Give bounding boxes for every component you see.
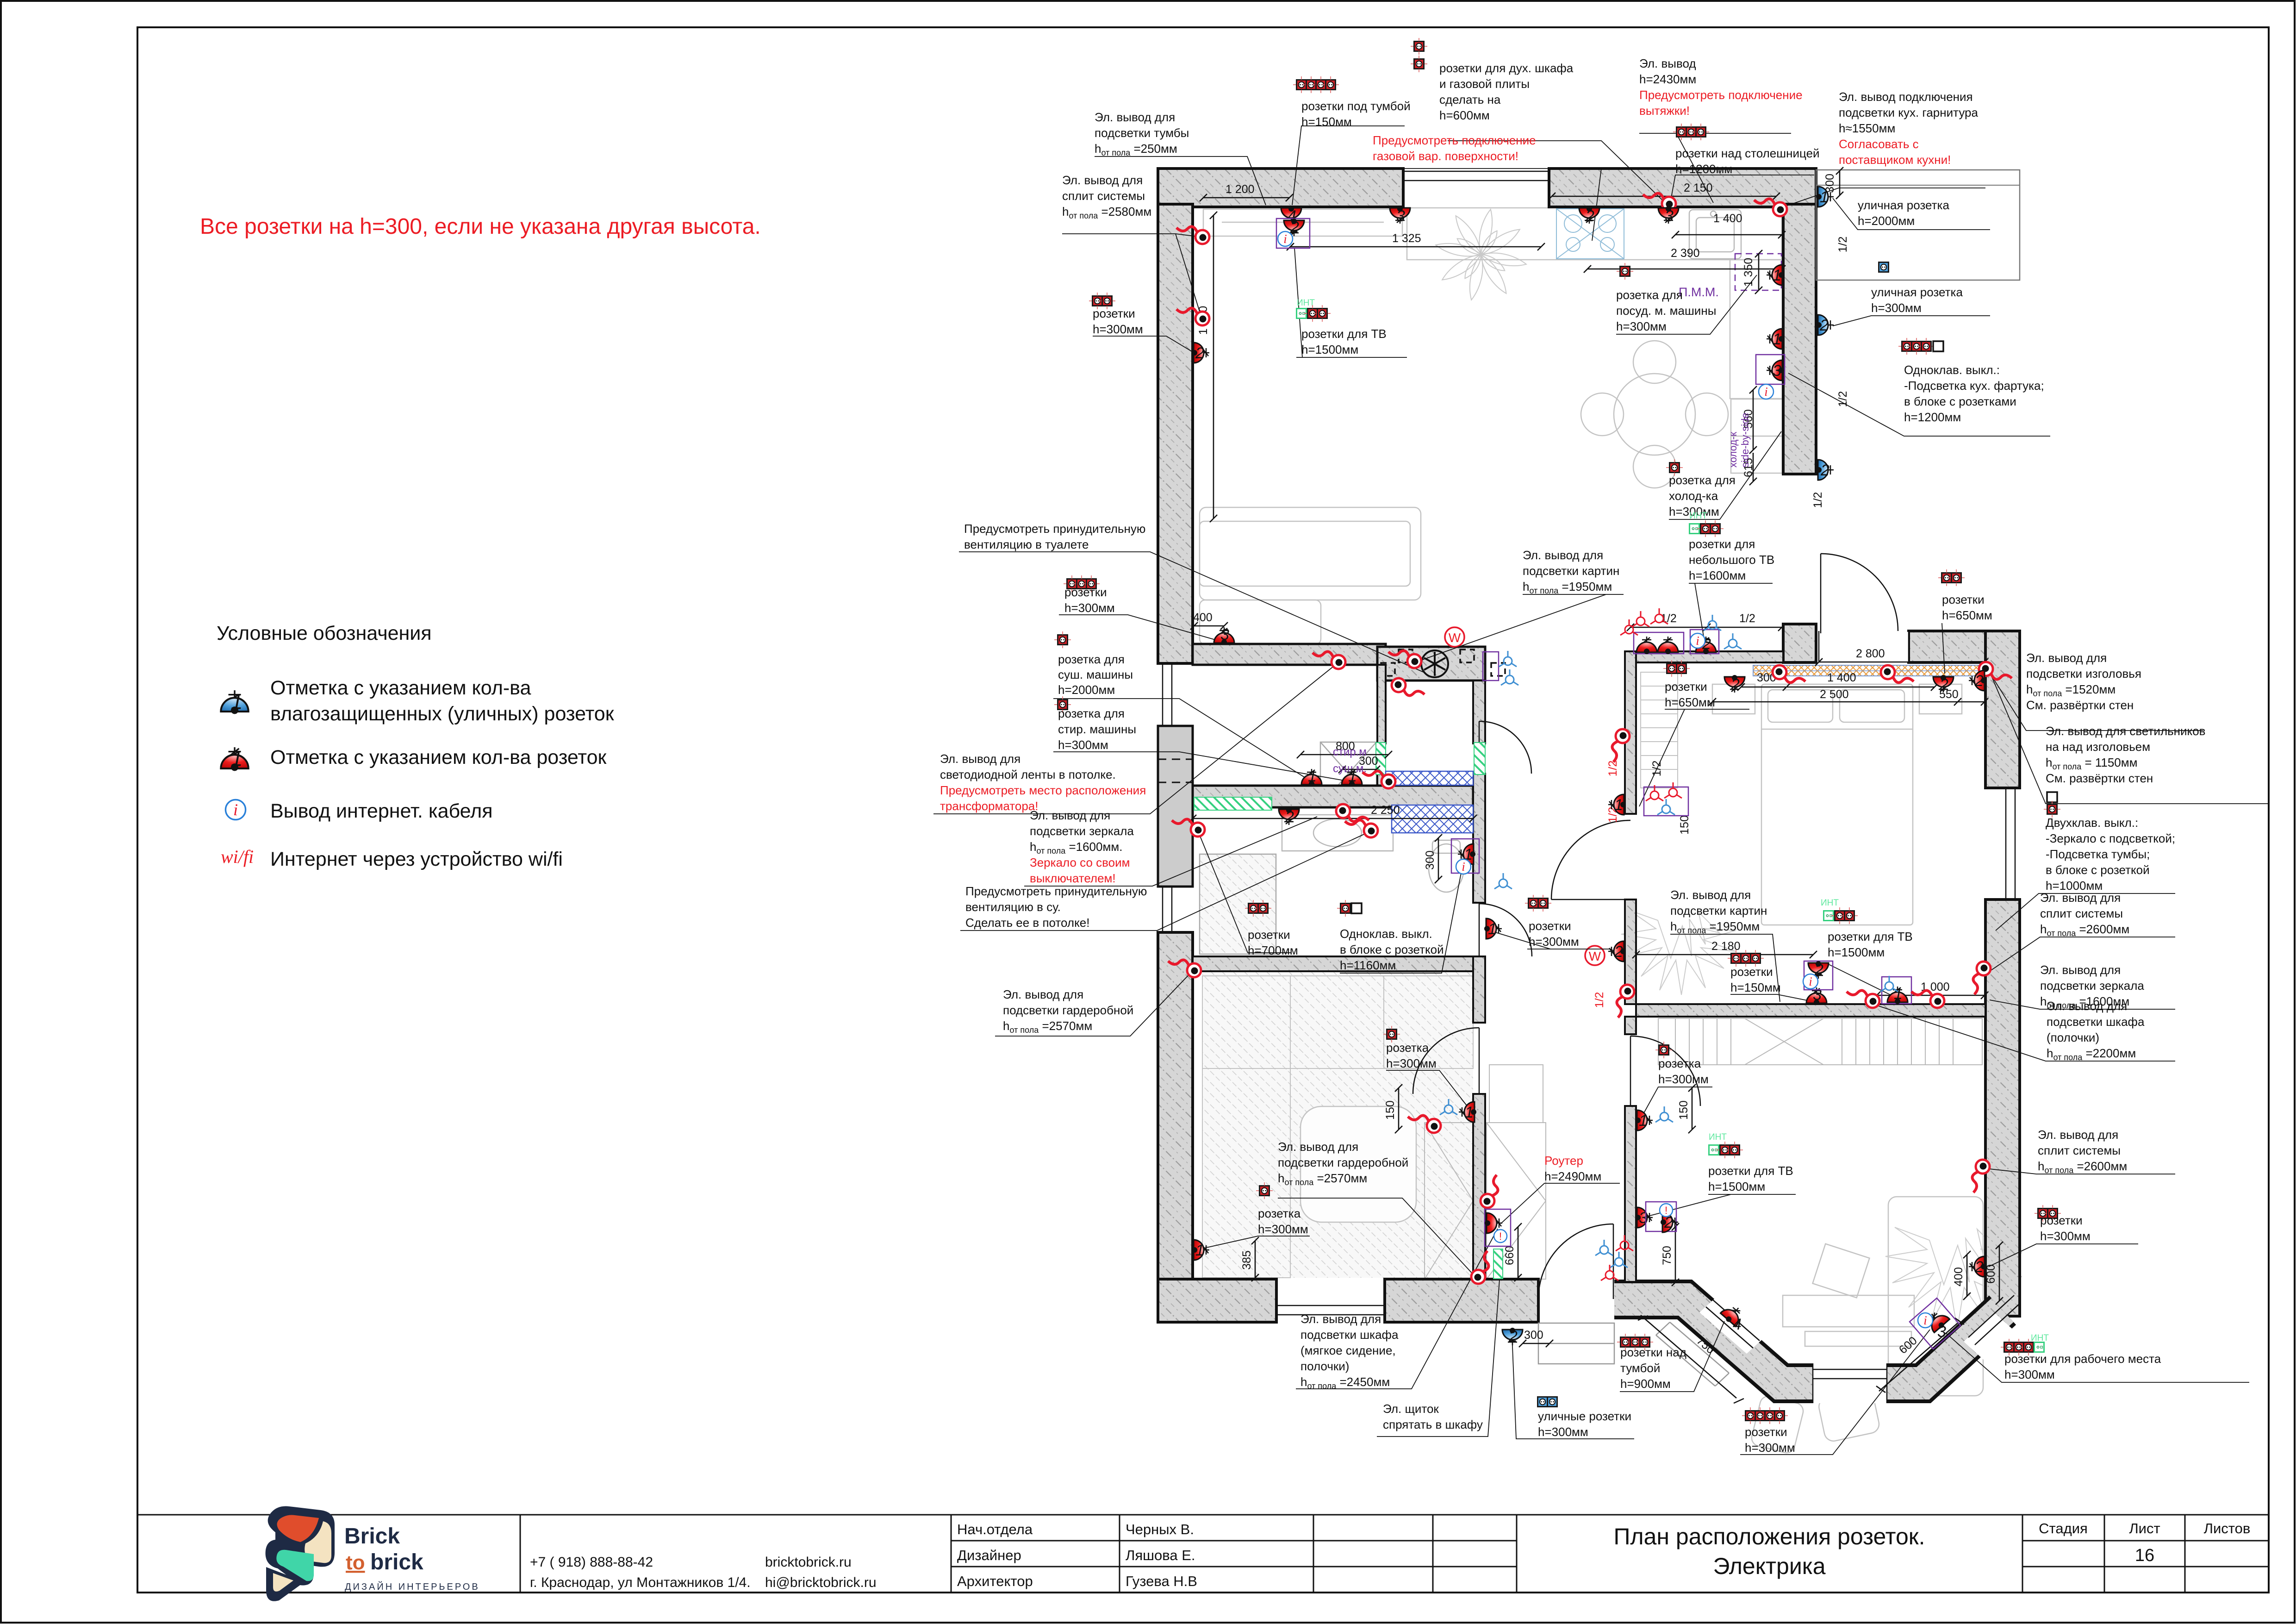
svg-text:150: 150: [1384, 1100, 1397, 1120]
svg-text:розетки для дух. шкафа: розетки для дух. шкафа: [1439, 61, 1574, 75]
svg-text:Эл. вывод: Эл. вывод: [1639, 56, 1696, 70]
svg-text:Эл. вывод для: Эл. вывод для: [1300, 1312, 1381, 1326]
svg-text:h=650мм: h=650мм: [1665, 695, 1715, 709]
svg-text:вытяжки!: вытяжки!: [1639, 104, 1690, 118]
svg-text:h=300мм: h=300мм: [2004, 1368, 2055, 1381]
svg-text:Предусмотреть принудительную: Предусмотреть принудительную: [965, 884, 1147, 898]
svg-text:750: 750: [1661, 1246, 1674, 1265]
svg-text:h=1500мм: h=1500мм: [1708, 1180, 1765, 1193]
svg-text:2 500: 2 500: [1820, 688, 1849, 701]
svg-text:1: 1: [231, 747, 243, 771]
svg-text:W: W: [1589, 949, 1601, 963]
svg-text:холод-ка: холод-ка: [1669, 489, 1718, 503]
svg-text:2: 2: [1820, 462, 1829, 479]
svg-text:bricktobrick.ru: bricktobrick.ru: [765, 1555, 852, 1570]
svg-text:и газовой плиты: и газовой плиты: [1439, 77, 1530, 91]
svg-text:розетки над: розетки над: [1620, 1345, 1686, 1359]
svg-text:Отметка с указанием кол-ва: Отметка с указанием кол-ва: [270, 677, 531, 699]
svg-text:1: 1: [1488, 920, 1497, 938]
svg-text:посуд. м. машины: посуд. м. машины: [1616, 304, 1716, 318]
svg-text:Черных В.: Черных В.: [1126, 1521, 1194, 1537]
svg-text:Вывод интернет. кабеля: Вывод интернет. кабеля: [270, 800, 493, 822]
svg-text:2: 2: [1614, 943, 1623, 961]
svg-text:h=300мм: h=300мм: [1538, 1425, 1588, 1439]
svg-text:розетки: розетки: [1665, 680, 1707, 693]
svg-text:h=2430мм: h=2430мм: [1639, 72, 1696, 86]
svg-text:660: 660: [1503, 1246, 1516, 1265]
svg-text:в блоке с розеткой: в блоке с розеткой: [1340, 943, 1444, 956]
svg-text:600: 600: [1985, 1264, 1997, 1284]
svg-text:h=300мм: h=300мм: [1616, 319, 1667, 333]
svg-text:h=300мм: h=300мм: [2040, 1229, 2091, 1243]
svg-text:розетки над столешницей: розетки над столешницей: [1675, 146, 1820, 160]
svg-text:(мягкое сидение,: (мягкое сидение,: [1300, 1343, 1396, 1357]
svg-text:ИНТ: ИНТ: [2031, 1333, 2049, 1343]
svg-text:brick: brick: [370, 1550, 423, 1574]
svg-text:Гузева Н.В: Гузева Н.В: [1126, 1573, 1197, 1589]
svg-text:400: 400: [1193, 611, 1213, 624]
svg-text:Все розетки на h=300, если не: Все розетки на h=300, если не указана др…: [200, 214, 761, 239]
svg-text:в блоке с розеткой: в блоке с розеткой: [2046, 863, 2150, 877]
svg-text:h=600мм: h=600мм: [1439, 108, 1490, 122]
svg-text:Эл. вывод для: Эл. вывод для: [2038, 1128, 2118, 1142]
svg-text:подсветки шкафа: подсветки шкафа: [2047, 1015, 2145, 1029]
svg-text:спрятать в шкафу: спрятать в шкафу: [1383, 1418, 1483, 1431]
svg-text:!: !: [1499, 1230, 1502, 1242]
svg-text:розетки для: розетки для: [1689, 537, 1755, 551]
svg-text:3: 3: [1813, 986, 1822, 1004]
svg-text:стир. машины: стир. машины: [1058, 722, 1136, 736]
svg-text:небольшого ТВ: небольшого ТВ: [1689, 553, 1774, 567]
svg-text:Отметка с указанием кол-ва роз: Отметка с указанием кол-ва розеток: [270, 746, 607, 768]
svg-text:ИНТ: ИНТ: [1709, 1132, 1727, 1142]
svg-text:h=650мм: h=650мм: [1942, 608, 1992, 622]
svg-text:См. развёртки стен: См. развёртки стен: [2026, 698, 2134, 712]
svg-text:1: 1: [1308, 768, 1317, 785]
svg-text:Brick: Brick: [344, 1524, 400, 1549]
svg-text:h=1200мм: h=1200мм: [1675, 162, 1732, 176]
svg-text:уличная розетка: уличная розетка: [1858, 198, 1949, 212]
svg-text:h=150мм: h=150мм: [1730, 981, 1781, 994]
svg-text:385: 385: [1240, 1250, 1253, 1270]
svg-text:Предусмотреть принудительную: Предусмотреть принудительную: [964, 522, 1145, 536]
svg-text:h=2000мм: h=2000мм: [1058, 683, 1115, 697]
svg-text:тумбой: тумбой: [1620, 1361, 1660, 1375]
svg-text:!: !: [1665, 1205, 1668, 1216]
svg-text:16: 16: [2135, 1546, 2154, 1565]
svg-text:подсветки шкафа: подсветки шкафа: [1300, 1328, 1399, 1342]
svg-text:подсветки картин: подсветки картин: [1670, 904, 1767, 918]
svg-text:Эл. вывод для: Эл. вывод для: [940, 752, 1020, 766]
svg-text:суш. машины: суш. машины: [1058, 668, 1133, 681]
svg-text:h≈1550мм: h≈1550мм: [1839, 121, 1895, 135]
svg-text:W: W: [1449, 631, 1461, 645]
svg-text:План расположения розеток.: План расположения розеток.: [1613, 1524, 1925, 1549]
svg-text:400: 400: [1952, 1267, 1965, 1287]
svg-text:2: 2: [1290, 219, 1299, 236]
svg-text:1: 1: [1465, 1104, 1474, 1121]
svg-text:3: 3: [1220, 626, 1229, 643]
svg-text:h=300мм: h=300мм: [1064, 601, 1115, 615]
svg-text:розетки: розетки: [1745, 1425, 1787, 1439]
svg-text:h=300мм: h=300мм: [1745, 1441, 1795, 1455]
svg-text:розетки: розетки: [2040, 1213, 2083, 1227]
svg-text:300: 300: [1424, 850, 1437, 870]
svg-text:4: 4: [1733, 1316, 1742, 1333]
svg-text:h=700мм: h=700мм: [1248, 943, 1298, 957]
svg-text:1: 1: [1773, 331, 1781, 348]
svg-text:h=300мм: h=300мм: [1529, 935, 1579, 949]
svg-text:трансформатора!: трансформатора!: [940, 799, 1038, 813]
svg-text:h=300мм: h=300мм: [1871, 301, 1922, 315]
svg-text:to: to: [346, 1551, 365, 1574]
svg-text:Эл. щиток: Эл. щиток: [1383, 1402, 1439, 1416]
svg-text:Эл. вывод для: Эл. вывод для: [2040, 891, 2121, 905]
svg-text:стир.м: стир.м: [1333, 746, 1367, 758]
svg-text:Условные обозначения: Условные обозначения: [217, 622, 432, 644]
svg-text:подсветки зеркала: подсветки зеркала: [2040, 979, 2144, 993]
svg-text:Предусмотреть подключение: Предусмотреть подключение: [1373, 133, 1536, 147]
svg-text:Эл. вывод для: Эл. вывод для: [1062, 173, 1143, 187]
svg-text:2: 2: [1285, 808, 1294, 826]
svg-text:розетки: розетки: [1093, 306, 1135, 320]
svg-text:h=1160мм: h=1160мм: [1340, 958, 1396, 972]
svg-text:Эл. вывод для: Эл. вывод для: [1003, 987, 1083, 1001]
svg-text:1: 1: [231, 690, 243, 714]
svg-text:3: 3: [1937, 1323, 1946, 1341]
svg-text:1/2: 1/2: [1811, 492, 1824, 508]
svg-text:1: 1: [1773, 267, 1781, 284]
svg-text:1: 1: [1348, 768, 1357, 785]
svg-text:вентиляцию в су.: вентиляцию в су.: [965, 900, 1061, 914]
svg-text:сплит системы: сплит системы: [2040, 906, 2123, 920]
svg-text:Эл. вывод подключения: Эл. вывод подключения: [1839, 90, 1973, 104]
svg-text:2: 2: [1585, 207, 1594, 225]
svg-text:Роутер: Роутер: [1544, 1154, 1583, 1168]
svg-text:h=300мм: h=300мм: [1386, 1056, 1437, 1070]
svg-text:Эл. вывод для: Эл. вывод для: [1670, 888, 1751, 902]
svg-text:2: 2: [1974, 672, 1984, 690]
svg-text:Лист: Лист: [2129, 1520, 2160, 1537]
svg-text:hi@bricktobrick.ru: hi@bricktobrick.ru: [765, 1575, 877, 1590]
svg-text:+7 ( 918) 888-88-42: +7 ( 918) 888-88-42: [530, 1555, 653, 1570]
svg-text:h=900мм: h=900мм: [1620, 1377, 1671, 1391]
svg-text:Ляшова Е.: Ляшова Е.: [1126, 1547, 1195, 1563]
svg-text:2 250: 2 250: [1371, 804, 1400, 817]
svg-text:3: 3: [1665, 207, 1674, 225]
svg-text:П.М.М.: П.М.М.: [1679, 285, 1719, 299]
svg-text:выключателем!: выключателем!: [1030, 871, 1116, 885]
svg-text:Зеркало со своим: Зеркало со своим: [1030, 856, 1130, 869]
svg-text:h=2490мм: h=2490мм: [1544, 1169, 1601, 1183]
svg-text:Стадия: Стадия: [2039, 1520, 2088, 1537]
svg-text:1/2: 1/2: [1836, 237, 1849, 253]
svg-text:розетки для ТВ: розетки для ТВ: [1828, 930, 1913, 943]
svg-text:розетки для ТВ: розетки для ТВ: [1301, 327, 1387, 341]
svg-text:2 390: 2 390: [1671, 247, 1700, 260]
svg-text:розетки для рабочего места: розетки для рабочего места: [2004, 1352, 2161, 1366]
svg-text:150: 150: [1678, 815, 1691, 835]
svg-text:Эл. вывод для: Эл. вывод для: [1523, 548, 1603, 562]
svg-text:в блоке с розетками: в блоке с розетками: [1904, 394, 2016, 408]
svg-text:подсветки кух. гарнитура: подсветки кух. гарнитура: [1839, 106, 1978, 119]
svg-text:Дизайнер: Дизайнер: [957, 1547, 1021, 1563]
svg-text:1 325: 1 325: [1392, 232, 1421, 245]
svg-text:1/2: 1/2: [1593, 992, 1606, 1008]
svg-text:h=300мм: h=300мм: [1093, 322, 1143, 336]
svg-text:г. Краснодар, ул Монтажников: г. Краснодар, ул Монтажников 1/4.: [530, 1575, 751, 1590]
svg-text:-Зеркало с подсветкой;: -Зеркало с подсветкой;: [2046, 831, 2175, 845]
svg-text:на над изголовьем: на над изголовьем: [2046, 740, 2150, 754]
svg-text:1/2: 1/2: [1739, 612, 1755, 625]
svg-text:2: 2: [1974, 1258, 1984, 1276]
svg-text:Эл. вывод для светильников: Эл. вывод для светильников: [2046, 724, 2205, 738]
svg-text:2: 2: [1508, 1328, 1518, 1345]
svg-text:влагозащищенных (уличных) розе: влагозащищенных (уличных) розеток: [270, 703, 615, 725]
svg-text:h=300мм: h=300мм: [1658, 1072, 1709, 1086]
svg-text:розетки: розетки: [1529, 919, 1571, 933]
svg-text:вентиляцию в туалете: вентиляцию в туалете: [964, 537, 1089, 551]
svg-text:газовой вар. поверхности!: газовой вар. поверхности!: [1373, 149, 1518, 163]
svg-text:подсветки картин: подсветки картин: [1523, 564, 1619, 578]
svg-text:подсветки гардеробной: подсветки гардеробной: [1278, 1156, 1408, 1169]
svg-text:Сделать ее в потолке!: Сделать ее в потолке!: [965, 916, 1089, 930]
svg-text:подсветки зеркала: подсветки зеркала: [1030, 824, 1134, 838]
svg-text:1 400: 1 400: [1713, 212, 1742, 225]
svg-text:Одноклав. выкл.:: Одноклав. выкл.:: [1904, 363, 2000, 377]
svg-text:розетки: розетки: [1942, 593, 1985, 606]
svg-text:150: 150: [1677, 1100, 1690, 1120]
svg-text:Предусмотреть место расположен: Предусмотреть место расположения: [940, 783, 1146, 797]
svg-text:1 350: 1 350: [1742, 258, 1755, 287]
svg-text:3: 3: [1396, 207, 1405, 225]
svg-text:1 200: 1 200: [1226, 183, 1255, 196]
svg-text:2: 2: [1195, 344, 1204, 362]
svg-text:ДИЗАЙН ИНТЕРЬЕРОВ: ДИЗАЙН ИНТЕРЬЕРОВ: [345, 1581, 480, 1592]
svg-text:-Подсветка кух. фартука;: -Подсветка кух. фартука;: [1904, 379, 2044, 393]
svg-text:розетка для: розетка для: [1669, 473, 1736, 487]
svg-text:подсветки изголовья: подсветки изголовья: [2026, 667, 2141, 681]
svg-text:уличная розетка: уличная розетка: [1871, 285, 1963, 299]
svg-text:поставщиком кухни!: поставщиком кухни!: [1839, 153, 1951, 167]
svg-text:розетка для: розетка для: [1058, 652, 1125, 666]
svg-text:h=150мм: h=150мм: [1301, 115, 1352, 129]
svg-text:wi/fi: wi/fi: [221, 846, 254, 867]
svg-text:1: 1: [1195, 1242, 1204, 1259]
svg-text:полочки): полочки): [1300, 1359, 1349, 1373]
svg-text:Эл. вывод для: Эл. вывод для: [1278, 1140, 1358, 1154]
svg-text:h=1500мм: h=1500мм: [1828, 945, 1885, 959]
svg-text:1/2: 1/2: [1836, 391, 1849, 407]
svg-text:2: 2: [1939, 676, 1948, 693]
svg-text:Эл. вывод для: Эл. вывод для: [2047, 999, 2127, 1013]
svg-text:Архитектор: Архитектор: [957, 1573, 1033, 1589]
svg-text:Эл. вывод для: Эл. вывод для: [1095, 110, 1175, 124]
svg-text:подсветки гардеробной: подсветки гардеробной: [1003, 1003, 1133, 1017]
svg-text:Интернет через устройство wi/f: Интернет через устройство wi/fi: [270, 848, 563, 870]
svg-text:(полочки): (полочки): [2047, 1031, 2099, 1044]
svg-text:1: 1: [1614, 796, 1623, 814]
svg-text:сплит системы: сплит системы: [1062, 189, 1145, 203]
svg-text:розетки под тумбой: розетки под тумбой: [1301, 99, 1411, 113]
svg-text:Одноклав. выкл.: Одноклав. выкл.: [1340, 927, 1432, 941]
svg-text:1: 1: [1820, 188, 1829, 206]
svg-text:розетки: розетки: [1248, 928, 1290, 942]
svg-text:розетка: розетка: [1658, 1056, 1701, 1070]
svg-text:сплит системы: сплит системы: [2038, 1143, 2121, 1157]
svg-text:-Подсветка тумбы;: -Подсветка тумбы;: [2046, 847, 2150, 861]
svg-text:Эл. вывод для: Эл. вывод для: [2026, 651, 2107, 665]
svg-text:2 800: 2 800: [1856, 647, 1885, 660]
svg-text:side-by-side: side-by-side: [1739, 412, 1751, 468]
svg-text:Электрика: Электрика: [1713, 1553, 1825, 1579]
svg-text:h=1200мм: h=1200мм: [1904, 410, 1961, 424]
svg-text:Листов: Листов: [2204, 1520, 2251, 1537]
svg-text:1 400: 1 400: [1827, 671, 1856, 684]
svg-text:h=300мм: h=300мм: [1258, 1222, 1308, 1236]
svg-text:светодиодной ленты в потолке.: светодиодной ленты в потолке.: [940, 768, 1116, 781]
svg-text:розетки: розетки: [1064, 585, 1107, 599]
svg-text:розетка: розетка: [1258, 1206, 1301, 1220]
svg-text:h=2000мм: h=2000мм: [1858, 214, 1915, 228]
svg-text:h=1500мм: h=1500мм: [1301, 343, 1358, 356]
svg-text:сделать на: сделать на: [1439, 93, 1501, 106]
svg-text:300: 300: [1524, 1329, 1543, 1342]
svg-text:Эл. вывод для: Эл. вывод для: [2040, 963, 2121, 977]
svg-text:h=1600мм: h=1600мм: [1689, 568, 1746, 582]
svg-text:1: 1: [1894, 985, 1903, 1003]
svg-text:Предусмотреть подключение: Предусмотреть подключение: [1639, 88, 1803, 102]
svg-text:1: 1: [1639, 1112, 1648, 1130]
svg-text:холод-к: холод-к: [1727, 431, 1739, 468]
svg-text:Нач.отдела: Нач.отдела: [957, 1521, 1033, 1537]
svg-text:3: 3: [1773, 362, 1781, 380]
svg-text:h=300мм: h=300мм: [1058, 738, 1108, 752]
svg-text:Двухклав. выкл.:: Двухклав. выкл.:: [2046, 816, 2138, 830]
svg-text:1/2: 1/2: [1606, 761, 1619, 777]
svg-text:подсветки тумбы: подсветки тумбы: [1095, 126, 1189, 140]
svg-text:розетки: розетки: [1730, 965, 1773, 979]
svg-text:ИНТ: ИНТ: [1689, 511, 1707, 521]
svg-text:розетки для ТВ: розетки для ТВ: [1708, 1164, 1793, 1178]
svg-text:розетка для: розетка для: [1616, 288, 1683, 302]
svg-text:Согласовать с: Согласовать с: [1839, 137, 1919, 151]
svg-text:розетка: розетка: [1386, 1041, 1429, 1055]
svg-text:уличные розетки: уличные розетки: [1538, 1409, 1631, 1423]
svg-text:розетка для: розетка для: [1058, 706, 1125, 720]
svg-text:2: 2: [1730, 676, 1740, 693]
svg-text:ИНТ: ИНТ: [1821, 898, 1839, 908]
svg-text:См. развёртки стен: См. развёртки стен: [2046, 771, 2153, 785]
svg-text:2: 2: [1819, 317, 1829, 334]
svg-text:Эл. вывод для: Эл. вывод для: [1030, 808, 1110, 822]
